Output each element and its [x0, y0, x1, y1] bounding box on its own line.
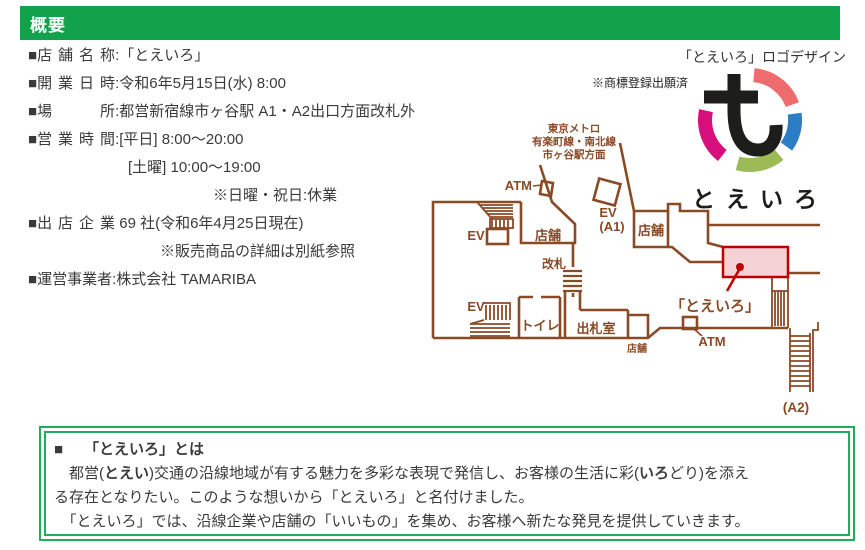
- bullet-square: ■: [54, 441, 84, 458]
- ev-upper-box: [487, 229, 508, 244]
- map-label-kaisatsu: 改札: [542, 256, 566, 271]
- map-label-shop-upper-left: 店舗: [535, 228, 561, 243]
- about-title-row: ■「とえいろ」とは: [54, 438, 840, 459]
- trademark-note: ※商標登録出願済: [592, 74, 688, 91]
- section-header-bar: 概要: [20, 6, 840, 40]
- bullet-square: ■: [28, 70, 37, 98]
- toeiro-store-highlight: [723, 247, 788, 277]
- info-row-opening-date: ■開業日時:令和6年5月15日(水) 8:00: [28, 70, 448, 98]
- bullet-square: ■: [28, 266, 37, 294]
- about-text: 都営(: [54, 465, 104, 482]
- page-title: 概要: [20, 11, 66, 36]
- about-text-bold-toei: とえい: [104, 465, 149, 482]
- stairs-store-icon: [772, 277, 788, 328]
- info-row-tenant-count: ■出店企業 69 社(令和6年4月25日現在): [28, 210, 448, 238]
- info-value: ※日曜・祝日:休業: [213, 187, 337, 204]
- about-text: どり)を添え: [669, 465, 749, 482]
- map-label-a2: (A2): [783, 400, 809, 415]
- info-row-hours-saturday: [土曜] 10:00〜19:00: [28, 154, 448, 182]
- about-toeiro-box: ■「とえいろ」とは 都営(とえい)交通の沿線地域が有する魅力を多彩な表現で発信し…: [44, 431, 850, 536]
- info-label: 開業日時: [37, 70, 115, 98]
- map-label-ev-a1: EV: [599, 205, 617, 220]
- map-label-toilet: トイレ: [520, 318, 559, 333]
- map-label-toeiro-store: 「とえいろ」: [670, 297, 760, 315]
- info-row-closed-days: ※日曜・祝日:休業: [28, 182, 448, 210]
- info-value: ※販売商品の詳細は別紙参照: [160, 243, 355, 260]
- info-value: 69 社(令和6年4月25日現在): [115, 215, 303, 232]
- map-label-a1: (A1): [599, 219, 624, 234]
- about-paragraph-line3: 「とえいろ」では、沿線企業や店舗の「いいもの」を集め、お客様へ新たな発見を提供し…: [54, 510, 840, 534]
- bullet-square: ■: [28, 98, 37, 126]
- info-label: 出店企業: [37, 210, 115, 238]
- map-label-ev-lower: EV: [467, 299, 485, 314]
- map-label-shop-right: 店舗: [638, 223, 664, 238]
- about-text: )交通の沿線地域が有する魅力を多彩な表現で発信し、お客様の生活に彩(: [149, 465, 639, 482]
- station-map: 東京メトロ 有楽町線・南北線 市ヶ谷駅方面 ATM EV (A1) 店舗 店舗 …: [430, 96, 865, 420]
- map-label-metro-line3: 市ヶ谷駅方面: [543, 148, 606, 161]
- info-label: 場所: [37, 98, 115, 126]
- info-value: [土曜] 10:00〜19:00: [128, 159, 261, 176]
- map-label-shop-lower: 店舗: [627, 342, 647, 355]
- map-label-ev-upper: EV: [467, 228, 485, 243]
- shop-lower-box: [628, 315, 648, 338]
- bullet-square: ■: [28, 210, 37, 238]
- map-label-metro-line2: 有楽町線・南北線: [532, 135, 616, 148]
- bullet-square: ■: [28, 42, 37, 70]
- about-paragraph-line1: 都営(とえい)交通の沿線地域が有する魅力を多彩な表現で発信し、お客様の生活に彩(…: [54, 462, 840, 486]
- stairs-upper-icon: [477, 202, 513, 228]
- about-text-bold-iro: いろ: [639, 465, 669, 482]
- map-label-metro-line1: 東京メトロ: [548, 122, 601, 135]
- info-row-store-name: ■店舗名称:「とえいろ」: [28, 42, 448, 70]
- bullet-square: ■: [28, 126, 37, 154]
- info-label: 営業時間: [37, 126, 115, 154]
- ev-a1-box: [594, 179, 621, 206]
- info-value: :令和6年5月15日(水) 8:00: [115, 75, 286, 92]
- info-label: 店舗名称: [37, 42, 115, 70]
- info-value: :株式会社 TAMARIBA: [112, 271, 256, 288]
- store-info-list: ■店舗名称:「とえいろ」 ■開業日時:令和6年5月15日(水) 8:00 ■場所…: [28, 42, 448, 294]
- overview-page: 概要 ■店舗名称:「とえいろ」 ■開業日時:令和6年5月15日(水) 8:00 …: [0, 0, 865, 550]
- info-row-hours-weekday: ■営業時間:[平日] 8:00〜20:00: [28, 126, 448, 154]
- info-value: :都営新宿線市ヶ谷駅 A1・A2出口方面改札外: [115, 103, 415, 120]
- about-paragraph-line2: る存在となりたい。このような想いから「とえいろ」と名付けました。: [54, 486, 840, 510]
- about-title: 「とえいろ」とは: [84, 441, 204, 458]
- stairs-a2-icon: [790, 322, 818, 392]
- map-label-atm-upper: ATM: [505, 178, 532, 193]
- map-label-ticket-office: 出札室: [576, 321, 615, 336]
- info-value: :[平日] 8:00〜20:00: [115, 131, 243, 148]
- info-row-products-note: ※販売商品の詳細は別紙参照: [28, 238, 448, 266]
- map-label-atm-lower: ATM: [698, 334, 725, 349]
- info-label: 運営事業者: [37, 271, 112, 288]
- info-value: :「とえいろ」: [115, 47, 209, 64]
- info-row-location: ■場所:都営新宿線市ヶ谷駅 A1・A2出口方面改札外: [28, 98, 448, 126]
- info-row-operator: ■運営事業者:株式会社 TAMARIBA: [28, 266, 448, 294]
